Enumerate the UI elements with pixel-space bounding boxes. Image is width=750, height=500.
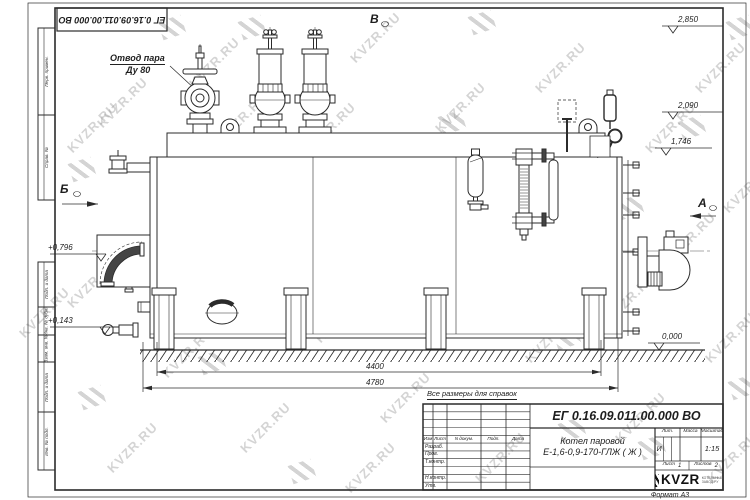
strip-label-vzam: Взам. инв. № <box>38 335 55 362</box>
th-izm: Изм <box>423 435 433 443</box>
dim-4780: 4780 <box>366 379 384 387</box>
sheets-value: 2 <box>715 463 718 469</box>
company-logo: KVZR КОТЕЛЬНЫЙ ЗАВОД.РУ <box>655 470 723 490</box>
reference-note: Все размеры для справок <box>427 390 517 400</box>
view-marker-a: А <box>698 197 707 209</box>
view-marker-v: В <box>370 13 379 25</box>
steam-outlet-valve <box>170 46 219 133</box>
strip-label-sprav: Справ. № <box>38 115 55 200</box>
ground-hatch <box>140 350 705 362</box>
level-0143: +0,143 <box>48 317 73 325</box>
kvzr-logo-subtext: КОТЕЛЬНЫЙ ЗАВОД.РУ <box>702 476 723 485</box>
row-tkontr: Т.контр. <box>425 460 445 465</box>
dim-4400: 4400 <box>366 363 384 371</box>
steam-outlet-label-line1: Отвод пара <box>110 54 165 65</box>
level-2090: 2,090 <box>678 102 698 110</box>
corner-doc-number: ЕГ 0.16.09.011.00.000 ВО <box>57 9 167 30</box>
th-data: Дата <box>506 435 530 443</box>
level-0000: 0,000 <box>662 333 682 341</box>
titleblock-name: Котел паровой Е-1,6-0,9-170-ГЛЖ ( Ж ) <box>530 430 655 464</box>
lit-label: Лит. <box>655 428 680 437</box>
boiler-title-line2: Е-1,6-0,9-170-ГЛЖ ( Ж ) <box>543 448 642 457</box>
row-nkontr: Н.контр. <box>425 476 446 481</box>
th-dokum: N докум. <box>447 435 481 443</box>
level-2850: 2,850 <box>678 16 698 24</box>
kvzr-logo-text: KVZR <box>661 473 700 487</box>
safety-valve-2 <box>295 30 335 133</box>
safety-valve-1 <box>250 30 290 133</box>
scale-label: Масштаб <box>701 428 723 437</box>
view-marker-b: Б <box>60 183 69 195</box>
sheets-cell: Листов 2 <box>689 461 723 470</box>
lifting-lug <box>221 119 239 133</box>
steam-outlet-label-line2: Ду 80 <box>126 66 150 75</box>
lifting-lug <box>579 119 597 133</box>
format-note: Формат А3 <box>615 491 725 500</box>
support-leg <box>152 288 176 349</box>
support-leg <box>582 288 606 349</box>
support-leg <box>424 288 448 349</box>
row-utv: Утв. <box>425 484 436 489</box>
burner-assembly <box>638 231 690 290</box>
strip-label-text: Инв. № подл. <box>44 427 49 456</box>
strip-label-text: Подп. и дата <box>44 373 49 402</box>
th-podp: Подп. <box>481 435 506 443</box>
sheet-value: 1 <box>678 463 681 469</box>
row-prov: Пров. <box>425 452 438 457</box>
blueprint-sheet: KVZR.RUKVZR.RUKVZR.RUKVZR.RUKVZR.RUKVZR.… <box>0 0 750 500</box>
boiler-title-line1: Котел паровой <box>560 437 625 446</box>
scale-value: 1:15 <box>701 437 723 461</box>
strip-label-text: Взам. инв. № <box>44 334 49 362</box>
rear-flange <box>623 160 640 336</box>
th-list: Лист <box>433 435 447 443</box>
strip-label-podp1: Подп. и дата <box>38 262 55 307</box>
level-0796: +0,796 <box>48 244 73 252</box>
sheet-cell: Лист 1 <box>655 461 689 470</box>
level-1746: 1,746 <box>671 138 691 146</box>
titleblock-doc-number: ЕГ 0.16.09.011.00.000 ВО <box>530 404 723 428</box>
strip-label-podp2: Подп. и дата <box>38 362 55 412</box>
kvzr-logo-sub2: ЗАВОД.РУ <box>702 480 723 484</box>
strip-label-perv: Перв. примен. <box>38 28 55 115</box>
sheets-label: Листов <box>694 463 711 468</box>
support-leg <box>284 288 308 349</box>
row-razrab: Разраб. <box>425 445 443 450</box>
sheet-label: Лист <box>663 463 675 468</box>
strip-label-text: Подп. и дата <box>44 270 49 299</box>
lit-value: И <box>655 437 663 461</box>
strip-label-text: Перв. примен. <box>44 56 49 87</box>
mass-label: Масса <box>680 428 701 437</box>
kvzr-logo-icon <box>655 474 659 487</box>
duct-elbow-box <box>97 235 150 287</box>
strip-label-text: Справ. № <box>44 147 49 168</box>
strip-label-inv-podl: Инв. № подл. <box>38 412 55 470</box>
